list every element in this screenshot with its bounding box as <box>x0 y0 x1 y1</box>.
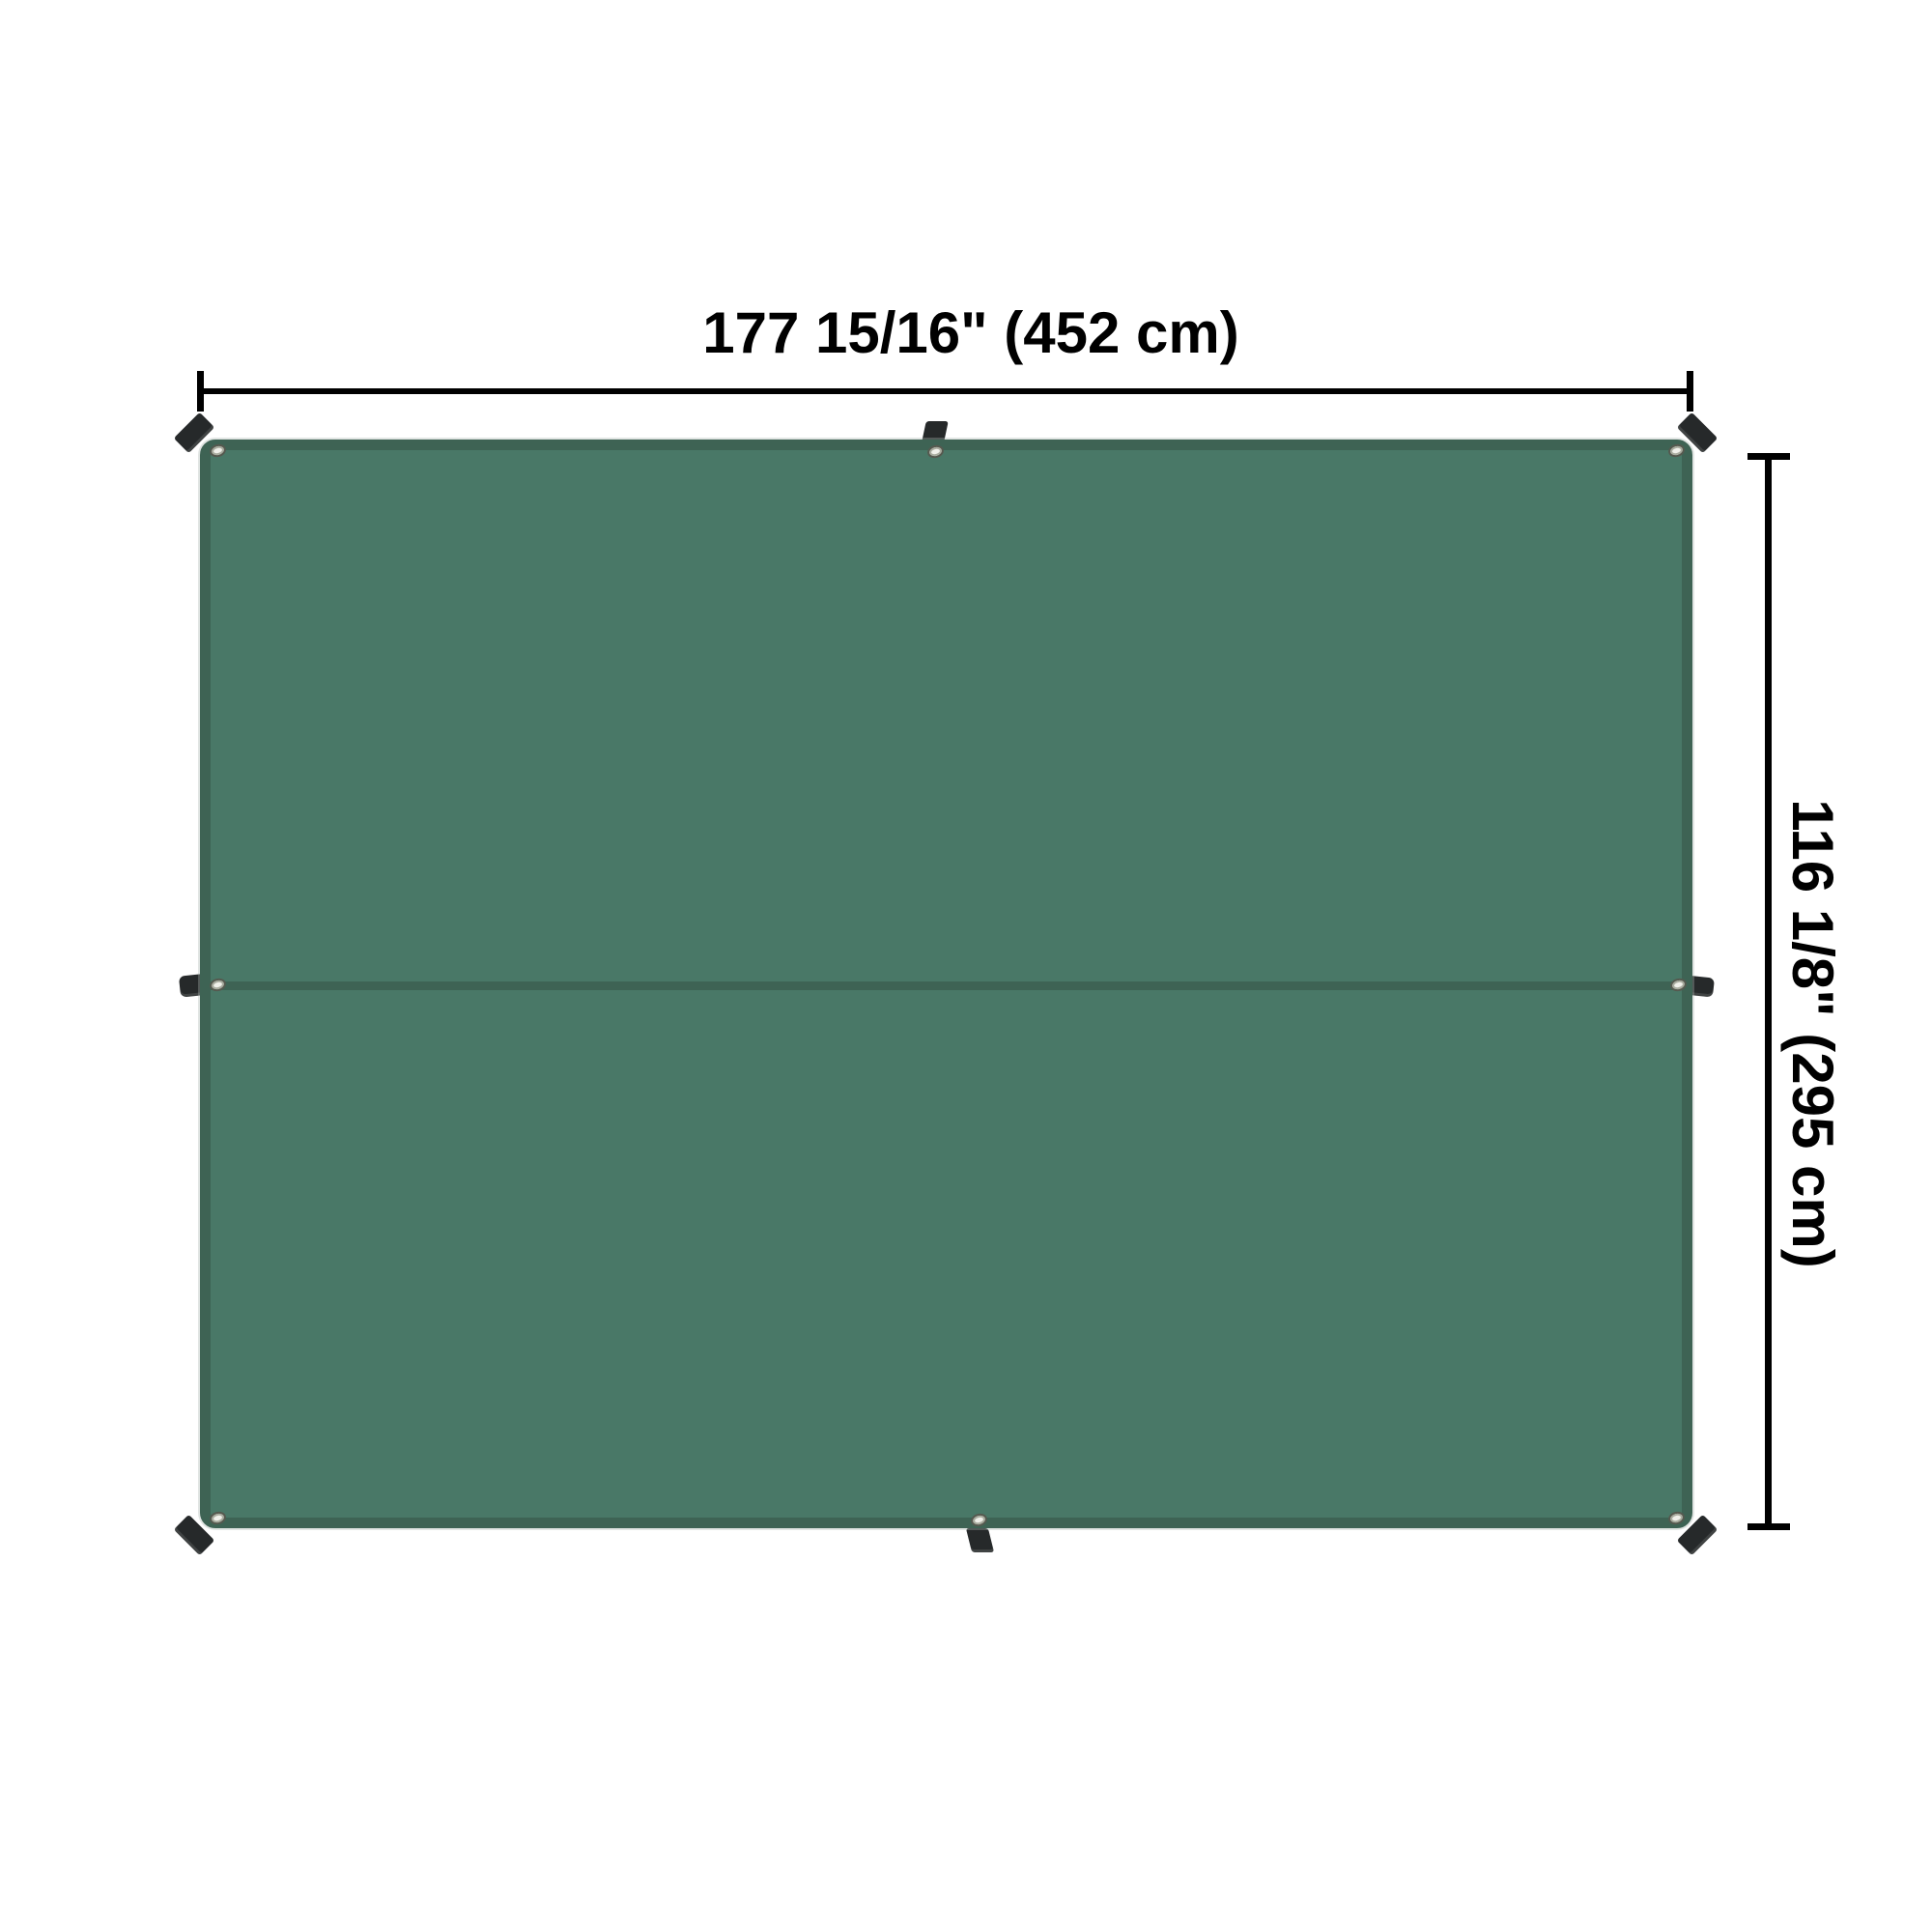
height-dimension-line <box>1765 456 1772 1525</box>
width-dimension-label: 177 15/16" (452 cm) <box>702 304 1239 362</box>
height-dimension-bottom-tick <box>1747 1523 1790 1530</box>
width-dimension-right-tick <box>1687 371 1693 412</box>
height-dimension-top-tick <box>1747 453 1790 460</box>
product-dimension-diagram: 177 15/16" (452 cm) 116 1/8" (295 cm) <box>0 0 1932 1932</box>
width-dimension-line <box>200 388 1690 394</box>
height-dimension-label: 116 1/8" (295 cm) <box>1783 799 1841 1267</box>
tarp-center-seam <box>202 981 1690 990</box>
width-dimension-left-tick <box>197 371 204 412</box>
tie-tab-bottom-center-icon <box>966 1528 994 1552</box>
